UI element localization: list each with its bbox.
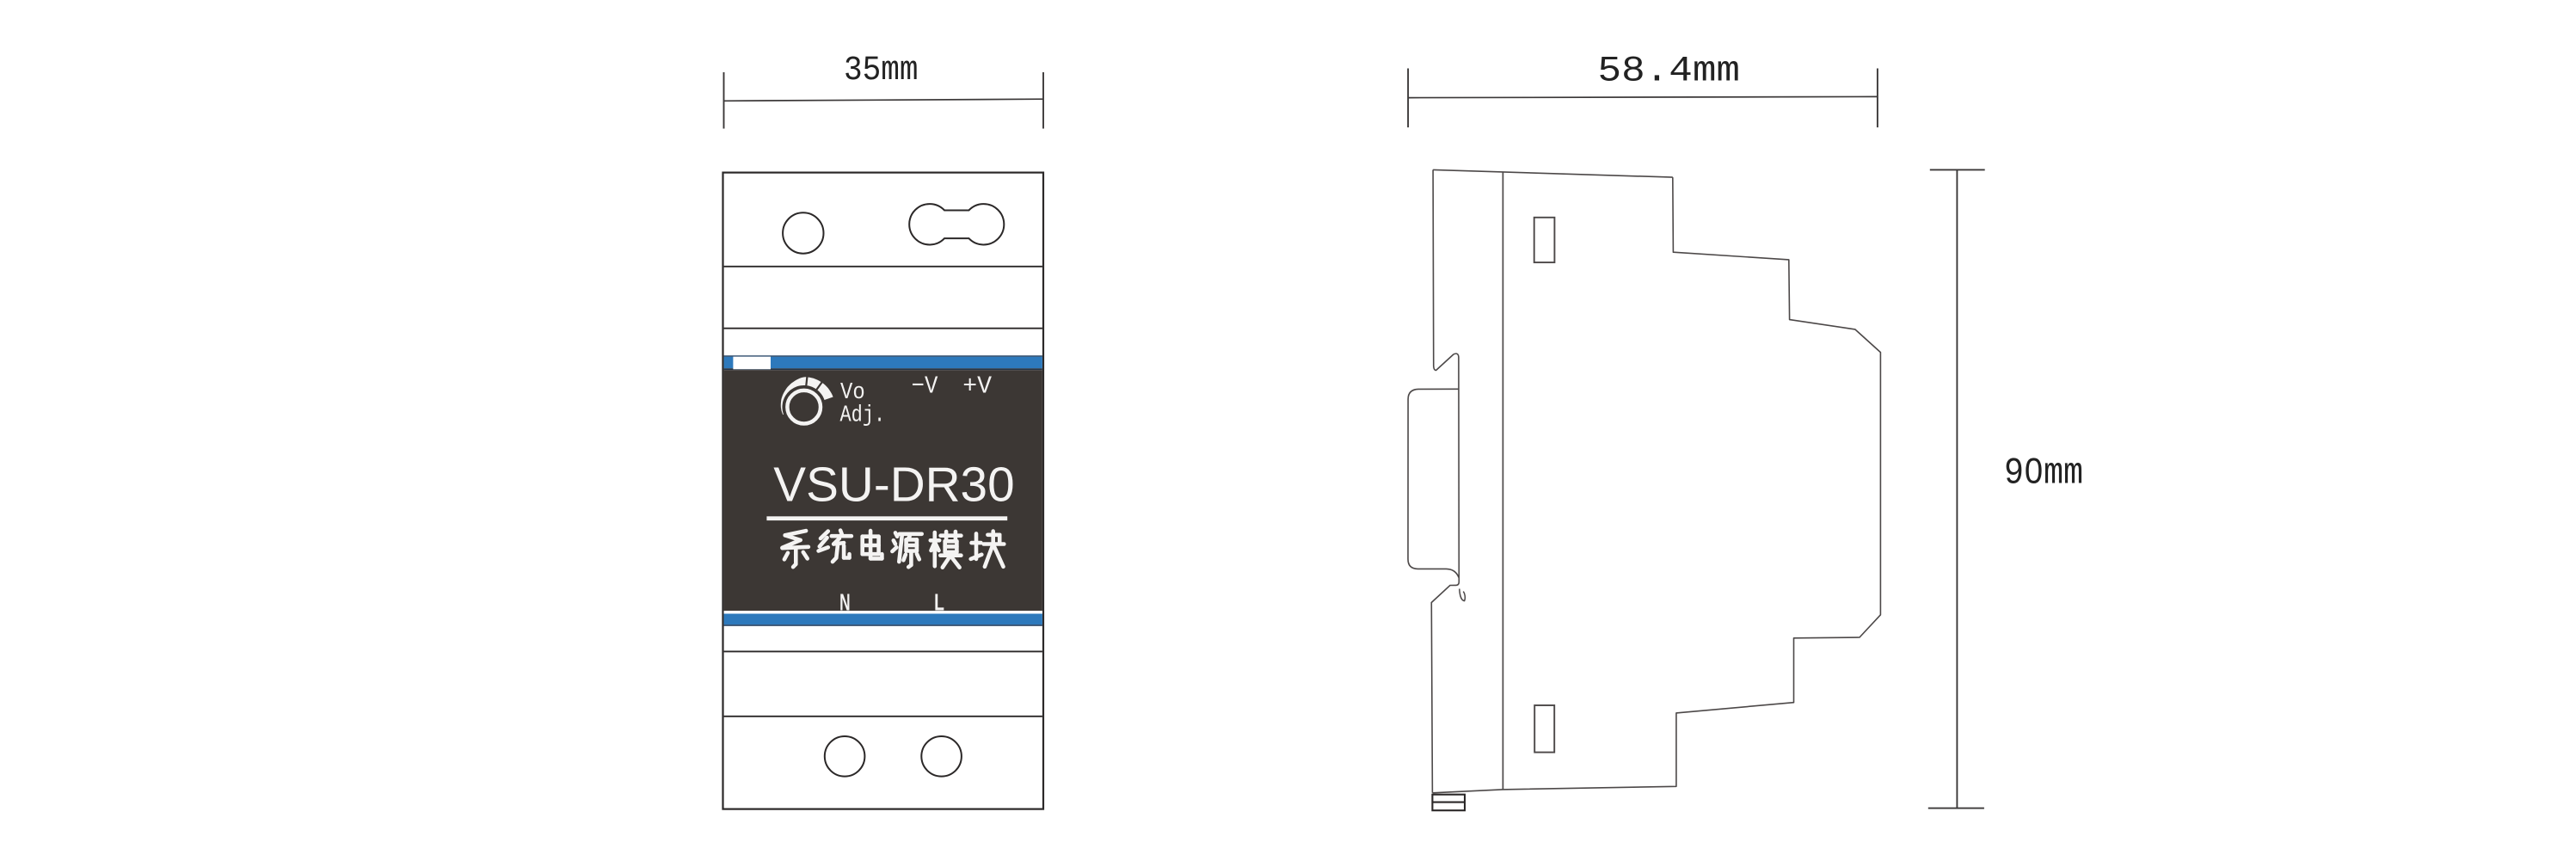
svg-text:90mm: 90mm: [2004, 452, 2083, 495]
svg-text:+V: +V: [962, 372, 992, 400]
svg-text:VSU-DR30: VSU-DR30: [773, 458, 1014, 513]
svg-text:L: L: [934, 589, 944, 616]
svg-text:58.4mm: 58.4mm: [1598, 50, 1741, 91]
svg-text:N: N: [839, 589, 851, 616]
svg-text:−V: −V: [912, 372, 938, 400]
svg-text:35mm: 35mm: [844, 52, 919, 90]
svg-text:Adj.: Adj.: [840, 402, 886, 427]
